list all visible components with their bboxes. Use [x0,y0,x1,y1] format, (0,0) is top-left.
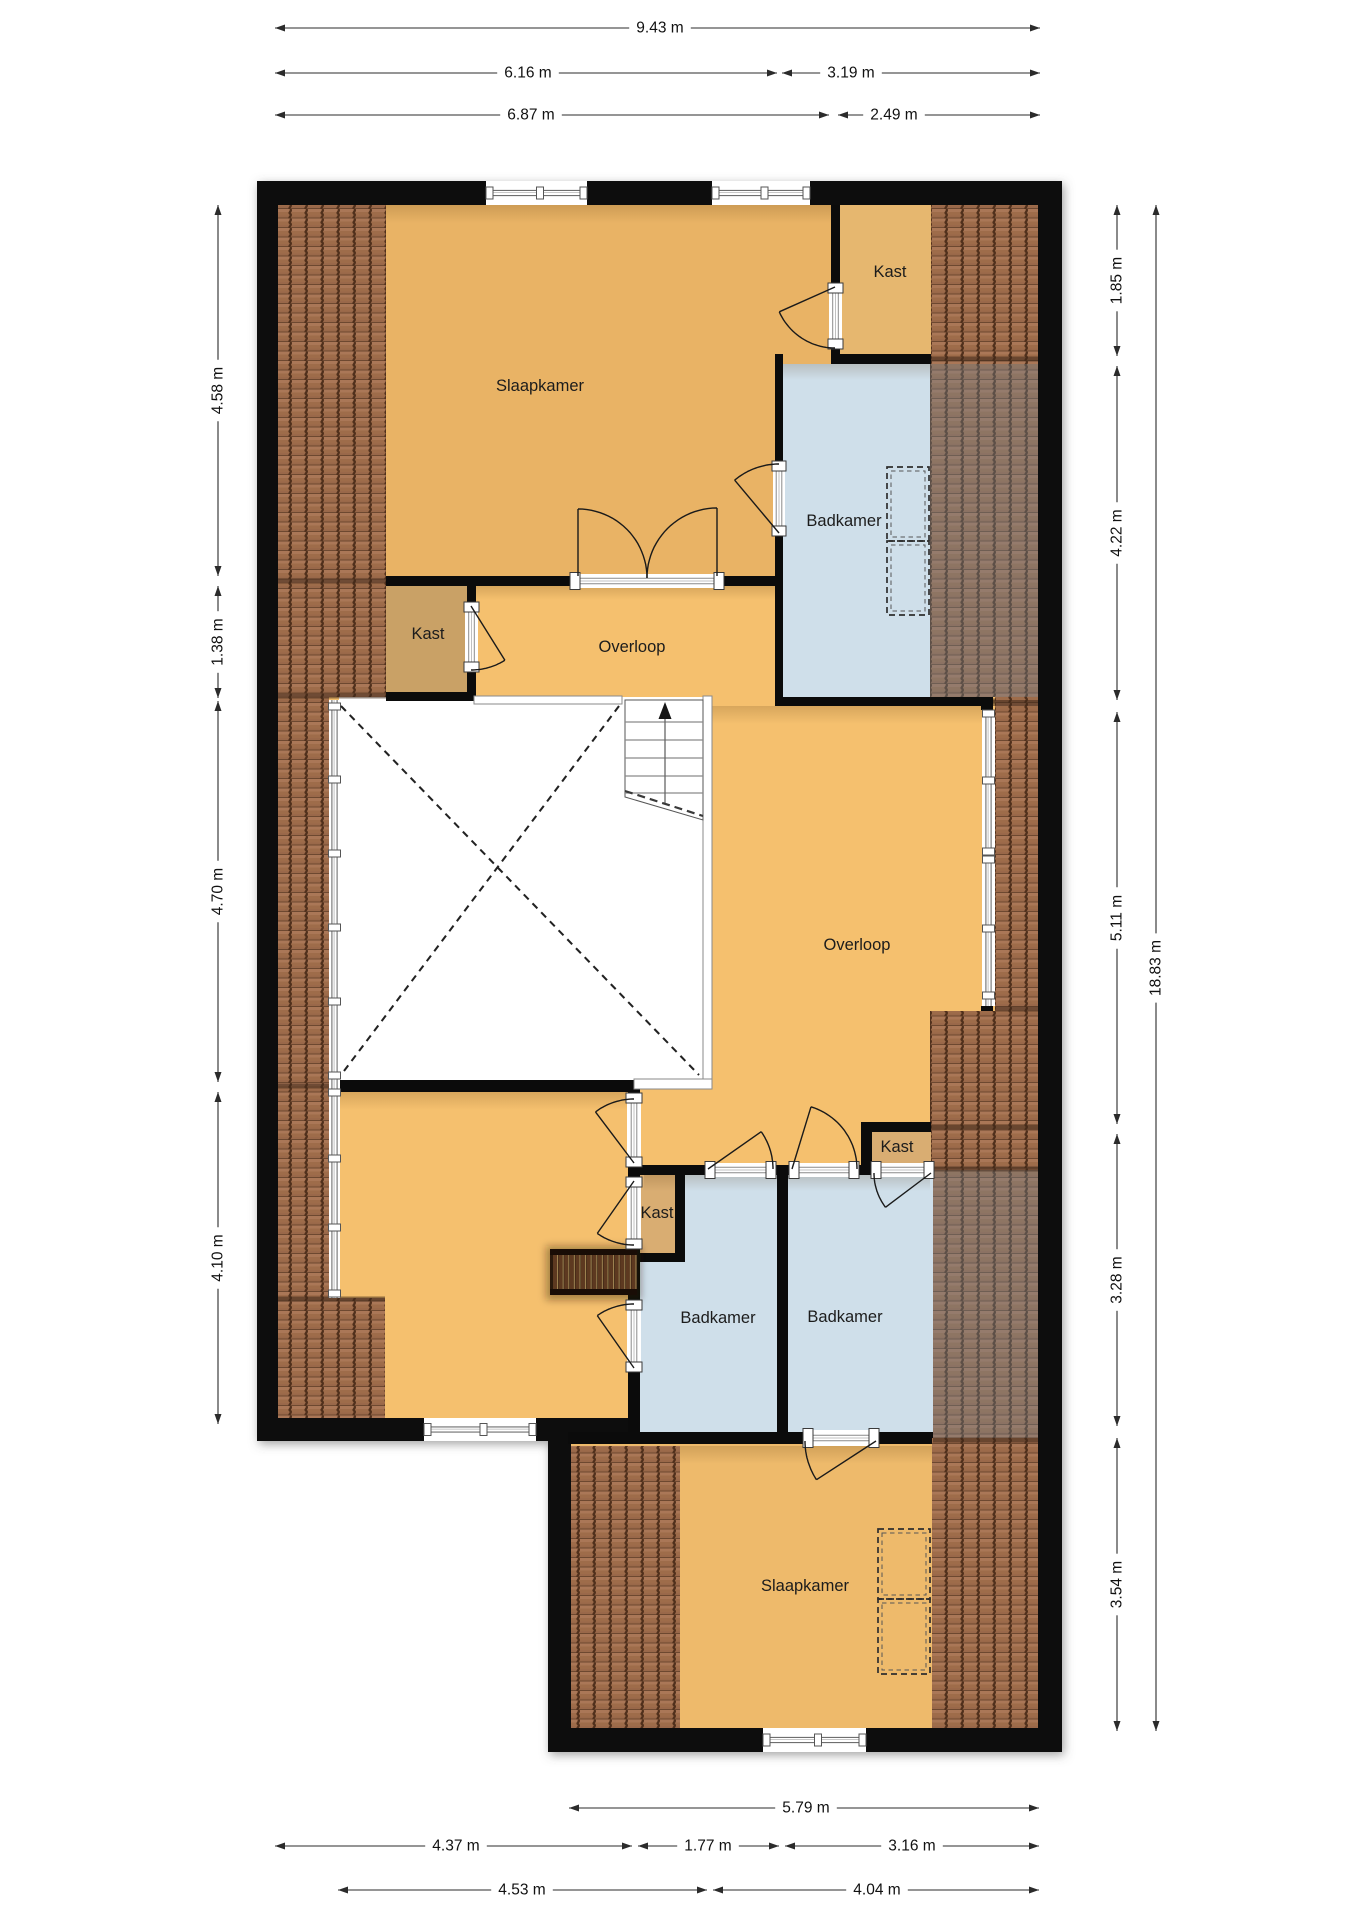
svg-text:2.49 m: 2.49 m [870,107,917,124]
svg-text:Badkamer: Badkamer [807,1308,883,1326]
svg-text:Kast: Kast [873,263,906,281]
svg-text:18.83 m: 18.83 m [1148,940,1165,996]
svg-text:4.04 m: 4.04 m [853,1882,900,1899]
svg-text:6.16 m: 6.16 m [504,65,551,82]
svg-text:1.85 m: 1.85 m [1109,257,1126,304]
svg-text:4.53 m: 4.53 m [498,1882,545,1899]
svg-text:Kast: Kast [880,1138,913,1156]
svg-text:3.54 m: 3.54 m [1109,1561,1126,1608]
svg-text:4.58 m: 4.58 m [210,367,227,414]
svg-text:Overloop: Overloop [824,936,891,954]
svg-text:1.77 m: 1.77 m [684,1838,731,1855]
svg-text:4.22 m: 4.22 m [1109,509,1126,556]
svg-text:Badkamer: Badkamer [806,512,882,530]
svg-text:Kast: Kast [640,1204,673,1222]
svg-text:1.38 m: 1.38 m [210,618,227,665]
svg-text:Badkamer: Badkamer [680,1309,756,1327]
svg-text:3.19 m: 3.19 m [827,65,874,82]
svg-text:9.43 m: 9.43 m [636,20,683,37]
svg-text:5.11 m: 5.11 m [1109,895,1126,941]
svg-text:3.16 m: 3.16 m [888,1838,935,1855]
svg-text:Kast: Kast [411,625,444,643]
svg-text:4.70 m: 4.70 m [210,868,227,915]
svg-text:Slaapkamer: Slaapkamer [761,1577,850,1595]
svg-text:Overloop: Overloop [599,638,666,656]
svg-text:4.10 m: 4.10 m [210,1234,227,1281]
svg-text:6.87 m: 6.87 m [507,107,554,124]
svg-text:Slaapkamer: Slaapkamer [496,377,585,395]
svg-text:5.79 m: 5.79 m [782,1800,829,1817]
svg-text:4.37 m: 4.37 m [432,1838,479,1855]
svg-text:3.28 m: 3.28 m [1109,1256,1126,1303]
